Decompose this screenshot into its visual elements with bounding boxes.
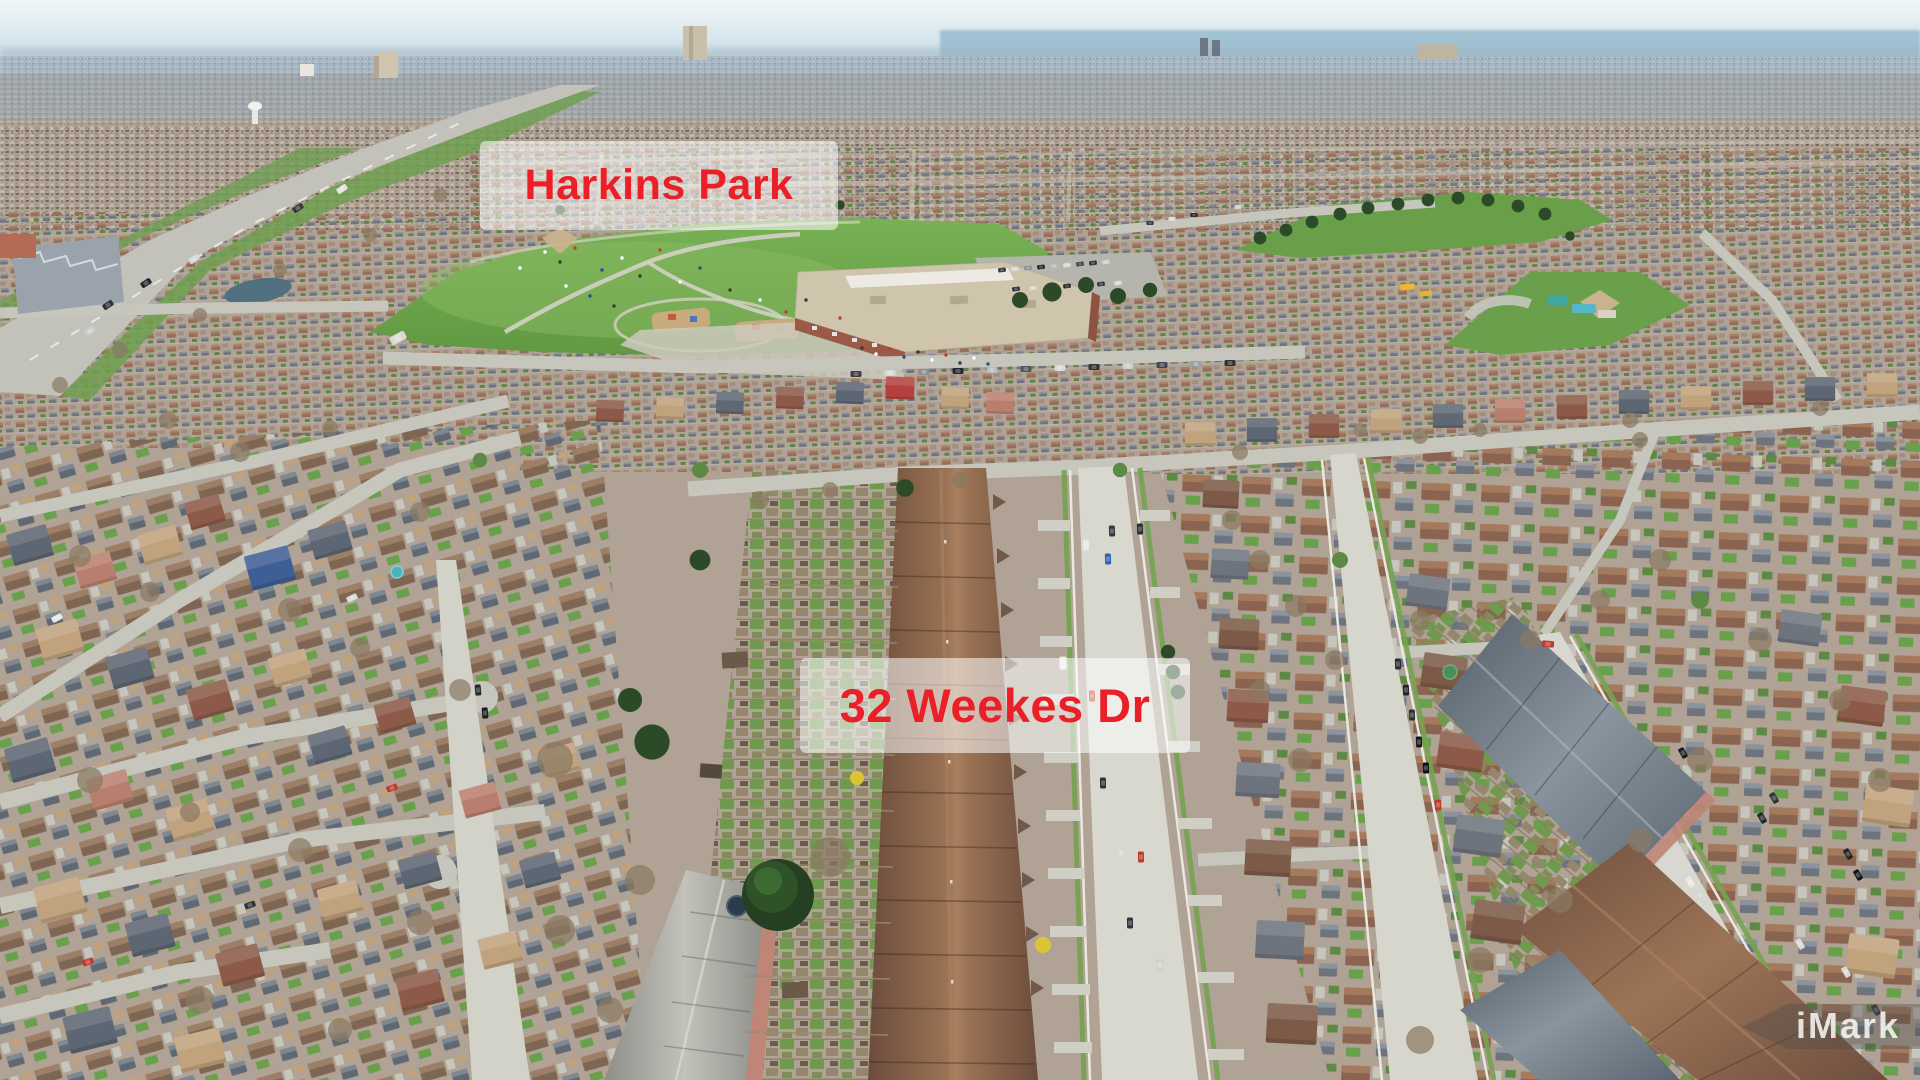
watermark: iMark xyxy=(1740,1002,1920,1050)
address-label-text: 32 Weekes Dr xyxy=(840,678,1151,733)
sawtooth-townhouses xyxy=(0,234,124,314)
big-spruce xyxy=(742,859,814,931)
watermark-text: iMark xyxy=(1796,1005,1900,1047)
park-label-text: Harkins Park xyxy=(525,161,794,210)
aerial-photo: Harkins Park 32 Weekes Dr iMark xyxy=(0,0,1920,1080)
address-label: 32 Weekes Dr xyxy=(800,658,1190,753)
aerial-scene xyxy=(0,0,1920,1080)
park-label: Harkins Park xyxy=(480,141,838,230)
